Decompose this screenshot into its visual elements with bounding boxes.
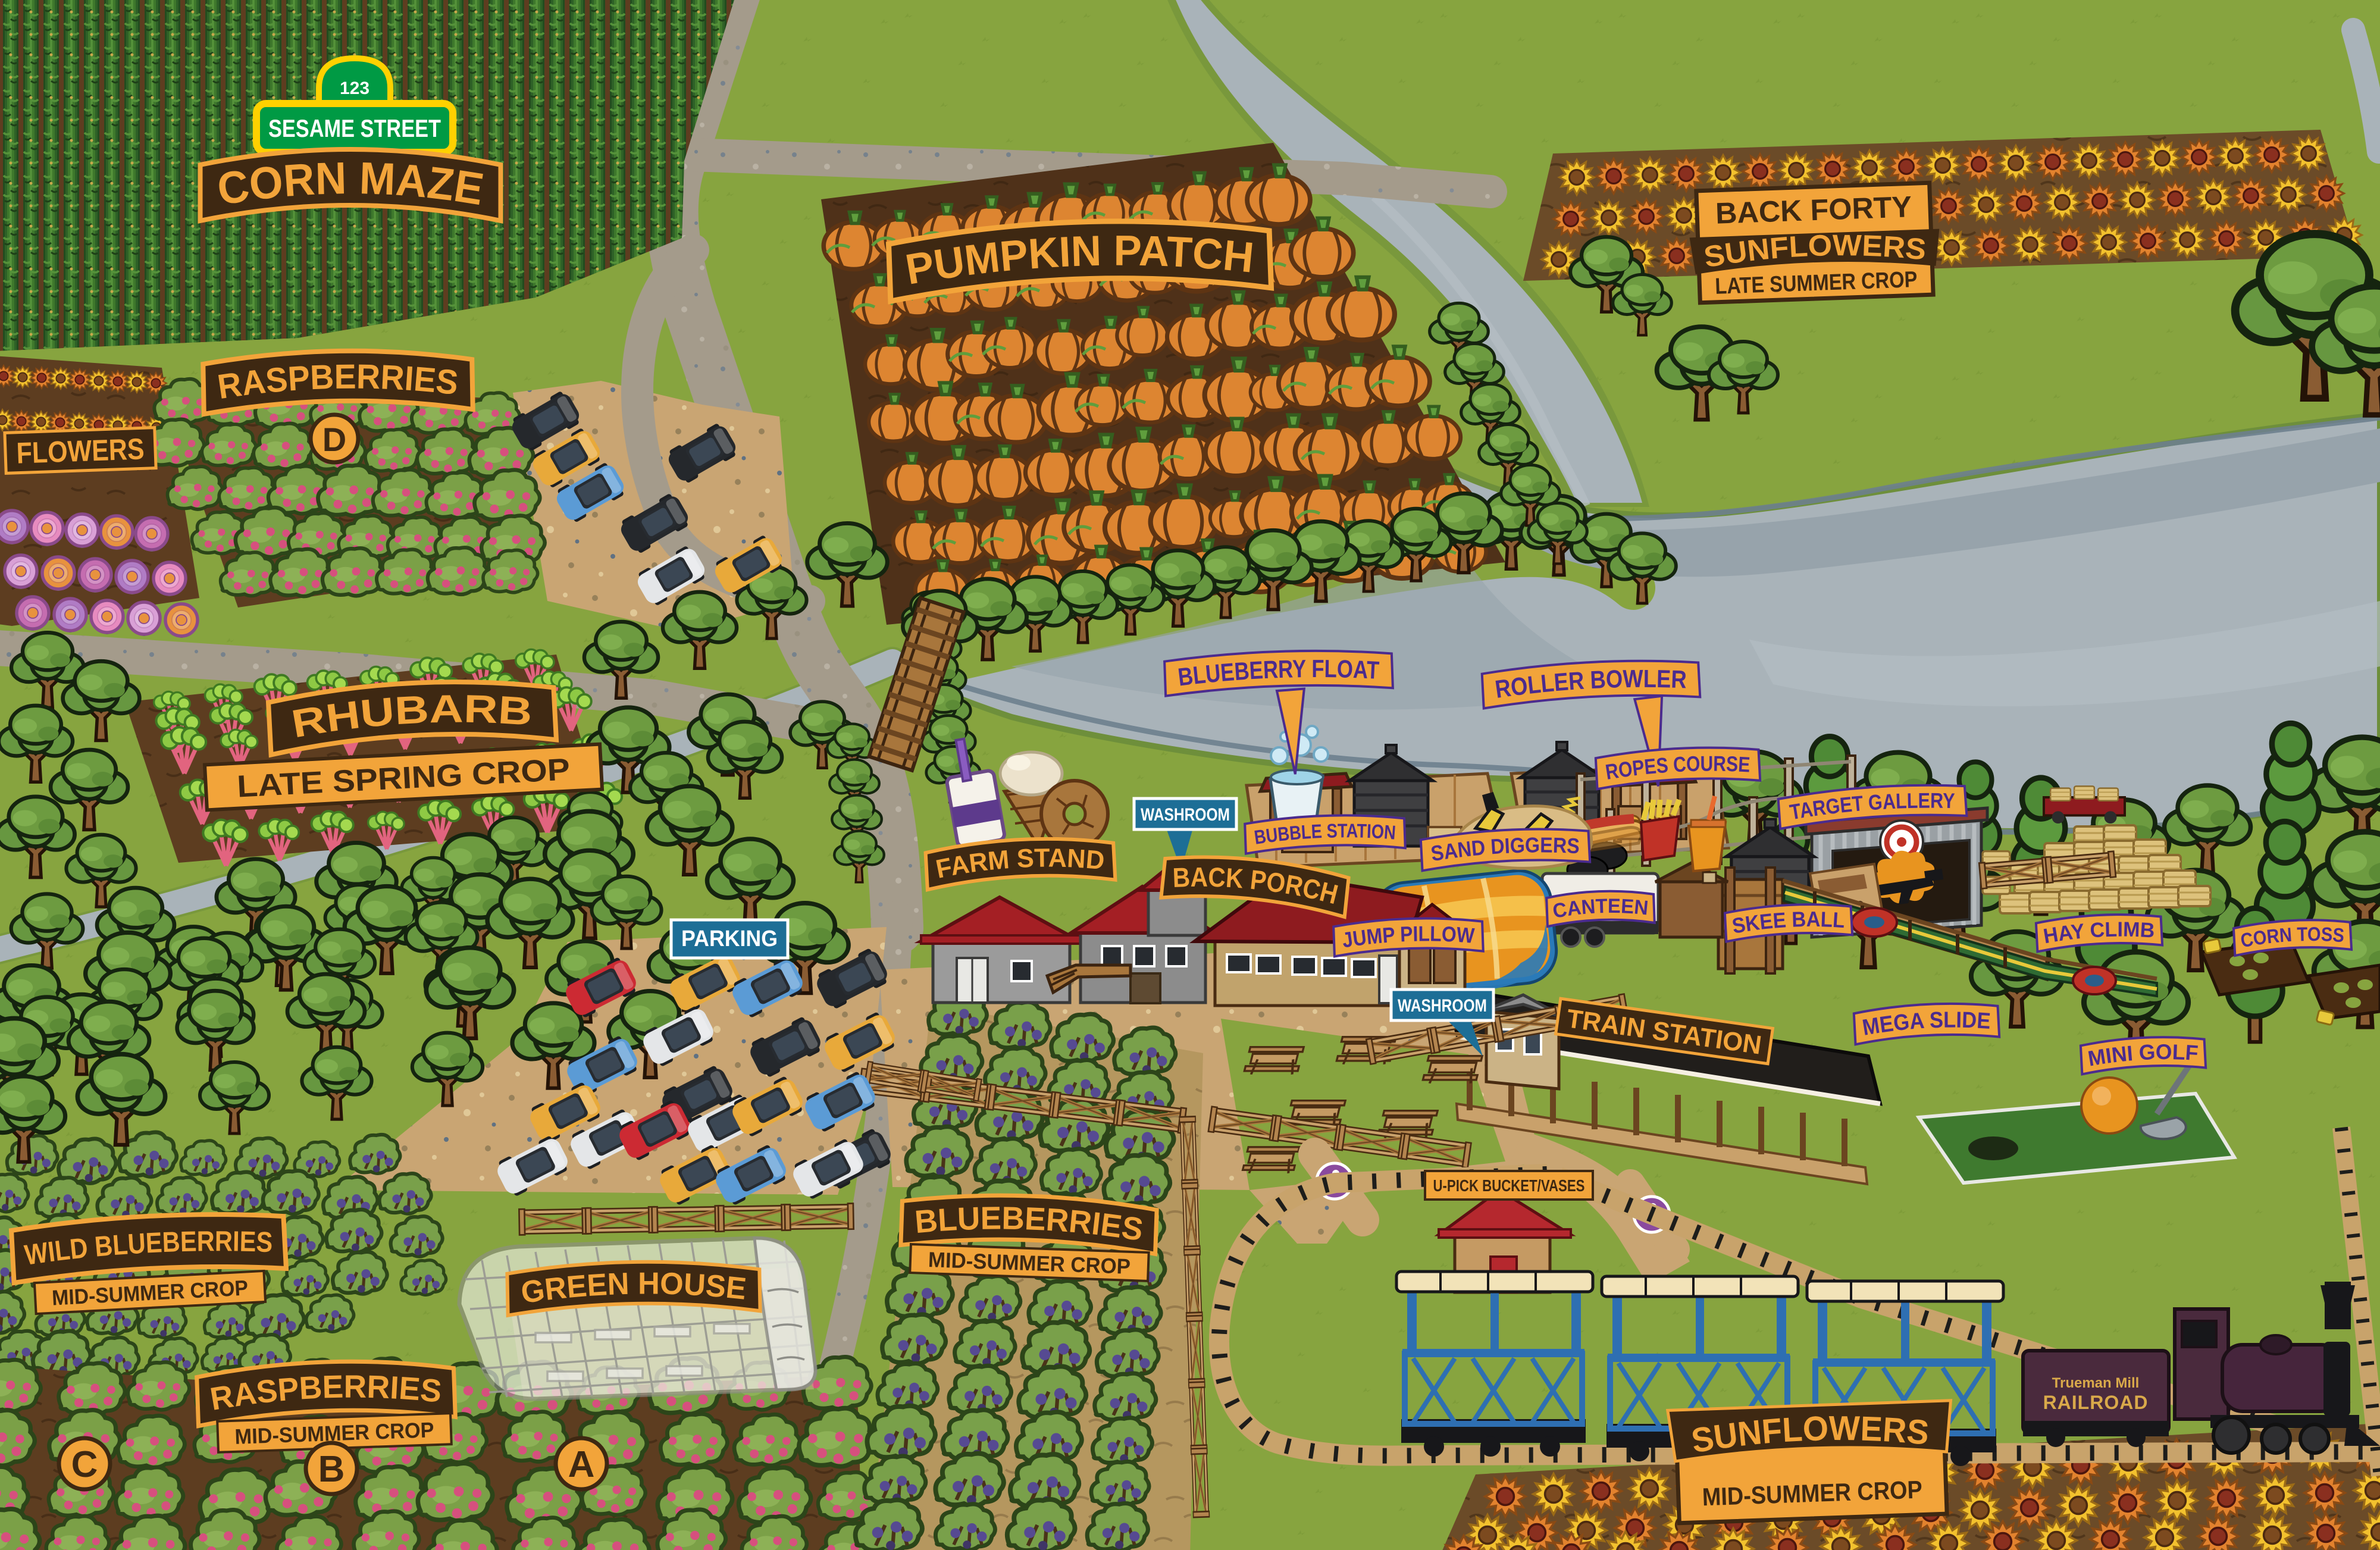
svg-text:Trueman Mill: Trueman Mill (2052, 1375, 2140, 1391)
svg-text:WASHROOM: WASHROOM (1141, 805, 1230, 825)
svg-text:PARKING: PARKING (681, 926, 778, 951)
svg-text:D: D (322, 421, 346, 458)
svg-text:SESAME STREET: SESAME STREET (268, 114, 441, 142)
svg-text:A: A (568, 1444, 595, 1485)
svg-text:BACK FORTY: BACK FORTY (1715, 190, 1912, 230)
svg-text:RAILROAD: RAILROAD (2043, 1392, 2149, 1413)
svg-text:WASHROOM: WASHROOM (1398, 996, 1487, 1016)
svg-text:FLOWERS: FLOWERS (16, 432, 145, 469)
svg-text:U-PICK BUCKET/VASES: U-PICK BUCKET/VASES (1433, 1176, 1585, 1195)
svg-text:C: C (71, 1444, 98, 1485)
svg-text:B: B (318, 1449, 345, 1490)
svg-text:123: 123 (340, 79, 369, 98)
